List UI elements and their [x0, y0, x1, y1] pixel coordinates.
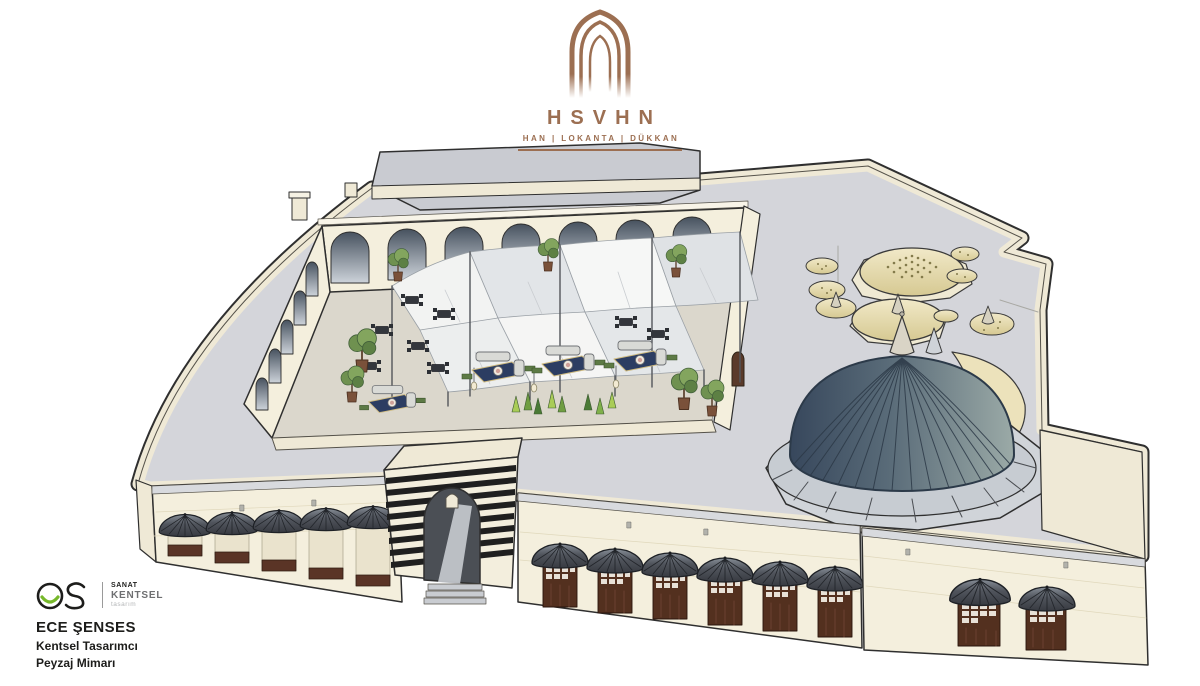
brand-name: HSVHN [450, 107, 750, 130]
brand-tagline: HAN | LOKANTA | DÜKKAN [450, 134, 750, 143]
presentation-board: HSVHN HAN | LOKANTA | DÜKKAN SANAT KENTS… [0, 0, 1200, 686]
designer-title-2: Peyzaj Mimarı [36, 656, 163, 670]
courtyard-door [732, 352, 744, 386]
portal-steps [424, 584, 486, 604]
studio-line-3: tasarım [111, 601, 163, 608]
portal-niche [446, 494, 458, 508]
brand-divider [518, 149, 682, 151]
brand-header: HSVHN HAN | LOKANTA | DÜKKAN [450, 6, 750, 151]
entrance-portal [384, 438, 522, 604]
credits-block: SANAT KENTSEL tasarım ECE ŞENSES Kentsel… [36, 579, 163, 670]
designer-title-1: Kentsel Tasarımcı [36, 639, 163, 653]
designer-name: ECE ŞENSES [36, 619, 163, 636]
pointed-arch-icon [564, 6, 636, 100]
es-monogram-icon [36, 579, 94, 611]
studio-line-2: KENTSEL [111, 590, 163, 601]
studio-line-1: SANAT [111, 582, 163, 590]
credits-divider [102, 582, 103, 608]
shopfront-row-left [152, 476, 402, 602]
